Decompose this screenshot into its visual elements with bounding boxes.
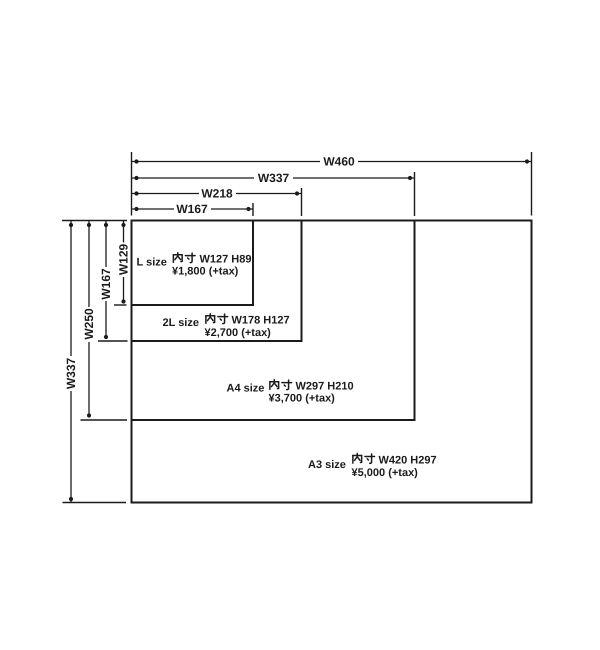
svg-text:¥2,700 (+tax): ¥2,700 (+tax) xyxy=(205,327,272,339)
svg-text:W460: W460 xyxy=(323,155,355,169)
svg-text:¥3,700 (+tax): ¥3,700 (+tax) xyxy=(269,393,336,405)
svg-text:W218: W218 xyxy=(201,187,233,201)
svg-text:L size: L size xyxy=(137,256,167,268)
svg-text:¥1,800 (+tax): ¥1,800 (+tax) xyxy=(172,266,239,278)
svg-text:W127 H89: W127 H89 xyxy=(200,254,252,266)
svg-text:W297 H210: W297 H210 xyxy=(296,380,354,392)
svg-text:W337: W337 xyxy=(258,171,290,185)
svg-text:W129: W129 xyxy=(117,244,131,276)
svg-text:W167: W167 xyxy=(99,268,113,300)
svg-text:W420 H297: W420 H297 xyxy=(379,454,437,466)
svg-text:W250: W250 xyxy=(82,308,96,340)
svg-text:W167: W167 xyxy=(176,202,208,216)
svg-text:W178 H127: W178 H127 xyxy=(232,314,290,326)
svg-text:A4 size: A4 size xyxy=(227,382,265,394)
svg-text:A3 size: A3 size xyxy=(308,459,346,471)
svg-text:W337: W337 xyxy=(64,358,78,390)
svg-text:¥5,000 (+tax): ¥5,000 (+tax) xyxy=(352,467,419,479)
svg-text:2L size: 2L size xyxy=(163,317,200,329)
